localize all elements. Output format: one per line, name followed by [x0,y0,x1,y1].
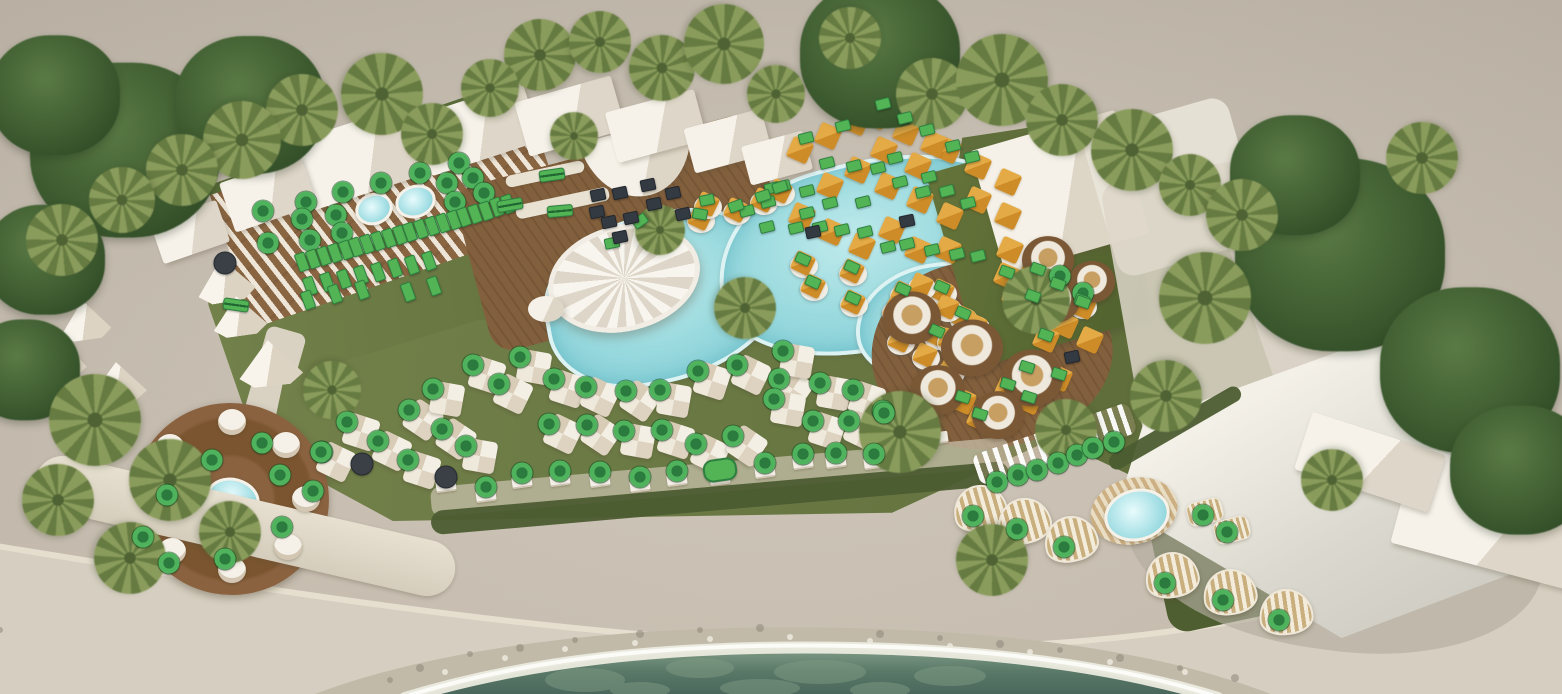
booking-spot-daybed[interactable] [614,421,635,442]
booking-spot-daybed[interactable] [544,369,565,390]
booking-spot-lounger[interactable] [963,150,980,164]
booking-spot-daybed[interactable] [764,389,785,410]
booking-spot-table[interactable] [538,167,565,183]
booking-spot-lounger[interactable] [920,170,937,184]
booking-spot-lounger[interactable] [969,249,986,263]
booking-spot-lounger[interactable] [954,389,972,404]
booking-spot-daybed[interactable] [1217,522,1238,543]
booking-spot-lounger[interactable] [944,139,961,153]
booking-spot-daybed[interactable] [630,467,651,488]
booking-spot-lounger[interactable] [874,97,891,111]
booking-spot-daybed[interactable] [1007,519,1028,540]
booking-spot-lounger[interactable] [821,196,838,210]
unavailable-spot[interactable] [611,186,628,201]
booking-spot-daybed[interactable] [810,373,831,394]
booking-spot-daybed[interactable] [1083,438,1104,459]
booking-spot-daybed[interactable] [1054,537,1075,558]
booking-spot-daybed[interactable] [539,414,560,435]
booking-spot-daybed[interactable] [253,201,274,222]
booking-spot-table[interactable] [222,297,249,313]
booking-spot-lounger[interactable] [933,279,951,295]
unavailable-spot[interactable] [898,214,915,229]
booking-spot-lounger[interactable] [891,175,908,189]
unavailable-spot[interactable] [589,188,606,203]
booking-spot-daybed[interactable] [270,465,291,486]
booking-spot-lounger[interactable] [948,247,965,261]
booking-spot-daybed[interactable] [550,461,571,482]
booking-spot-daybed[interactable] [874,403,895,424]
booking-spot-lounger[interactable] [818,156,835,170]
booking-spot-daybed[interactable] [157,485,178,506]
booking-spot-daybed[interactable] [337,412,358,433]
booking-spot-lounger[interactable] [1037,327,1055,342]
booking-spot-lounger[interactable] [692,207,709,220]
booking-spot-daybed[interactable] [793,444,814,465]
booking-spot-lounger[interactable] [954,305,972,321]
booking-spot-daybed[interactable] [311,442,332,463]
booking-spot-daybed[interactable] [727,355,748,376]
booking-spot-lounger[interactable] [959,196,976,210]
booking-spot-daybed[interactable] [686,434,707,455]
booking-spot-lounger[interactable] [918,123,935,137]
booking-spot-daybed[interactable] [590,462,611,483]
booking-spot-lounger[interactable] [834,119,851,133]
booking-spot-lounger[interactable] [1050,366,1068,381]
booking-spot-daybed[interactable] [826,443,847,464]
booking-spot-daybed[interactable] [1193,505,1214,526]
booking-spot-lounger[interactable] [844,290,862,306]
booking-spot-daybed[interactable] [398,450,419,471]
unavailable-spot[interactable] [645,197,662,212]
booking-spot-daybed[interactable] [1104,432,1125,453]
booking-spot-lounger[interactable] [879,240,896,254]
booking-spot-daybed[interactable] [769,369,790,390]
booking-spot-table[interactable] [547,204,574,218]
booking-spot-lounger[interactable] [1029,261,1047,276]
booking-spot-daybed[interactable] [423,379,444,400]
booking-spot-lounger[interactable] [804,274,822,290]
booking-spot-daybed[interactable] [773,341,794,362]
booking-spot-lounger[interactable] [999,376,1017,391]
booking-spot-lounger[interactable] [833,223,850,237]
booking-spot-daybed[interactable] [333,182,354,203]
booking-spot-daybed[interactable] [577,415,598,436]
booking-spot-lounger[interactable] [845,159,862,173]
booking-spot-daybed[interactable] [215,549,236,570]
booking-spot-lounger[interactable] [938,184,955,198]
booking-spot-lounger[interactable] [923,243,940,257]
unavailable-spot[interactable] [639,178,656,193]
booking-spot-daybed[interactable] [803,411,824,432]
booking-spot-lounger[interactable] [914,185,931,199]
booking-spot-lounger[interactable] [898,237,915,251]
booking-spot-lounger[interactable] [1024,288,1042,303]
booking-spot-daybed[interactable] [723,426,744,447]
booking-spot-daybed[interactable] [456,436,477,457]
booking-spot-daybed[interactable] [410,163,431,184]
booking-spot-daybed[interactable] [252,433,273,454]
booking-spot-daybed[interactable] [1048,453,1069,474]
booking-spot-lounger[interactable] [400,281,417,303]
booking-spot-lounger[interactable] [896,111,913,125]
booking-spot-daybed[interactable] [292,209,313,230]
booking-spot-lounger[interactable] [699,193,716,207]
booking-spot-daybed[interactable] [1027,460,1048,481]
booking-spot-daybed[interactable] [202,450,223,471]
booking-spot-daybed[interactable] [399,400,420,421]
booking-spot-lounger[interactable] [894,281,912,297]
booking-spot-large-bed[interactable] [702,456,739,484]
booking-spot-lounger[interactable] [798,184,815,198]
unavailable-spot[interactable] [674,207,691,222]
booking-spot-daybed[interactable] [272,517,293,538]
booking-spot-lounger[interactable] [370,261,387,283]
booking-spot-lounger[interactable] [758,220,775,234]
booking-spot-daybed[interactable] [1155,573,1176,594]
booking-spot-daybed[interactable] [258,233,279,254]
booking-spot-daybed[interactable] [489,374,510,395]
booking-spot-lounger[interactable] [426,275,443,297]
booking-spot-daybed[interactable] [755,453,776,474]
unavailable-spot[interactable] [664,186,681,201]
booking-spot-daybed[interactable] [987,472,1008,493]
booking-spot-daybed[interactable] [843,380,864,401]
booking-spot-lounger[interactable] [404,254,421,276]
unavailable-spot[interactable] [611,230,628,245]
unavailable-spot[interactable] [804,225,821,240]
unavailable-spot[interactable] [1063,350,1080,365]
booking-spot-lounger[interactable] [998,264,1016,279]
booking-spot-daybed[interactable] [133,527,154,548]
booking-spot-daybed[interactable] [476,477,497,498]
booking-spot-markers [0,0,1562,694]
booking-spot-lounger[interactable] [1018,359,1036,374]
booking-spot-daybed[interactable] [864,444,885,465]
booking-spot-daybed[interactable] [688,361,709,382]
booking-spot-daybed[interactable] [303,481,324,502]
unavailable-spot[interactable] [351,453,374,476]
booking-spot-lounger[interactable] [797,131,814,145]
booking-spot-daybed[interactable] [368,431,389,452]
booking-spot-lounger[interactable] [387,257,404,279]
booking-spot-daybed[interactable] [667,461,688,482]
booking-spot-daybed[interactable] [159,553,180,574]
booking-spot-lounger[interactable] [928,323,946,339]
booking-spot-daybed[interactable] [616,381,637,402]
booking-spot-lounger[interactable] [869,161,886,175]
booking-spot-lounger[interactable] [843,259,861,275]
booking-spot-lounger[interactable] [856,225,873,239]
booking-spot-lounger[interactable] [798,206,815,220]
booking-spot-daybed[interactable] [371,173,392,194]
unavailable-spot[interactable] [214,252,237,275]
booking-spot-lounger[interactable] [886,151,903,165]
booking-spot-daybed[interactable] [650,380,671,401]
beach-club-aerial-map [0,0,1562,694]
booking-spot-lounger[interactable] [1020,389,1038,404]
booking-spot-daybed[interactable] [1213,590,1234,611]
booking-spot-lounger[interactable] [971,406,989,421]
booking-spot-daybed[interactable] [652,420,673,441]
unavailable-spot[interactable] [435,466,458,489]
booking-spot-lounger[interactable] [794,251,812,267]
booking-spot-daybed[interactable] [463,355,484,376]
booking-spot-lounger[interactable] [854,195,871,209]
booking-spot-daybed[interactable] [839,411,860,432]
booking-spot-daybed[interactable] [1269,610,1290,631]
booking-spot-daybed[interactable] [963,506,984,527]
booking-spot-lounger[interactable] [421,250,438,272]
booking-spot-daybed[interactable] [1008,465,1029,486]
booking-spot-daybed[interactable] [576,377,597,398]
unavailable-spot[interactable] [600,215,617,230]
booking-spot-daybed[interactable] [512,463,533,484]
booking-spot-daybed[interactable] [437,173,458,194]
booking-spot-daybed[interactable] [510,347,531,368]
booking-spot-daybed[interactable] [432,419,453,440]
booking-spot-lounger[interactable] [787,221,804,235]
